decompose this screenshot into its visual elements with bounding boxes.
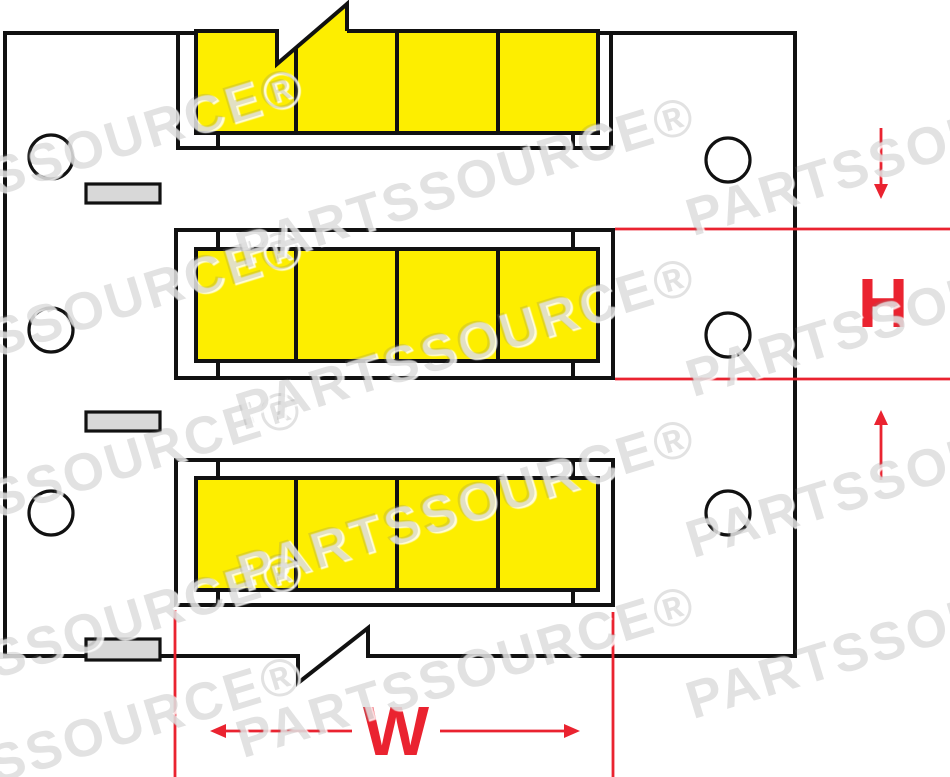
w-arrow-right-head <box>564 724 580 738</box>
sleeve <box>498 478 598 590</box>
sleeve <box>498 31 598 133</box>
sleeve <box>498 249 598 361</box>
hole <box>29 491 73 535</box>
sleeve <box>196 478 296 590</box>
sleeve-row-1 <box>176 0 613 148</box>
hole <box>29 308 73 352</box>
w-arrow-left-head <box>210 724 226 738</box>
gray-tab <box>86 639 160 660</box>
width-label: W <box>363 692 429 770</box>
sleeve-card-diagram: H W PARTSSOURCE® PARTSSOURCE® PARTSSOURC… <box>0 0 950 777</box>
sleeve <box>397 478 498 590</box>
hole <box>706 313 750 357</box>
sleeve-row-3 <box>176 460 613 605</box>
hole <box>29 135 73 179</box>
gray-tab <box>86 184 160 203</box>
sleeve <box>296 478 397 590</box>
diagram-drawing: H W <box>0 0 950 777</box>
gray-tab <box>86 412 160 431</box>
hole <box>706 138 750 182</box>
sleeve <box>397 31 498 133</box>
sleeve <box>296 31 397 133</box>
sleeve <box>296 249 397 361</box>
h-arrow-up-head <box>874 410 888 425</box>
height-label: H <box>858 264 909 342</box>
sleeve-row-2 <box>176 230 613 378</box>
sleeve <box>397 249 498 361</box>
hole <box>706 491 750 535</box>
h-arrow-down-head <box>874 184 888 199</box>
sleeve <box>196 249 296 361</box>
